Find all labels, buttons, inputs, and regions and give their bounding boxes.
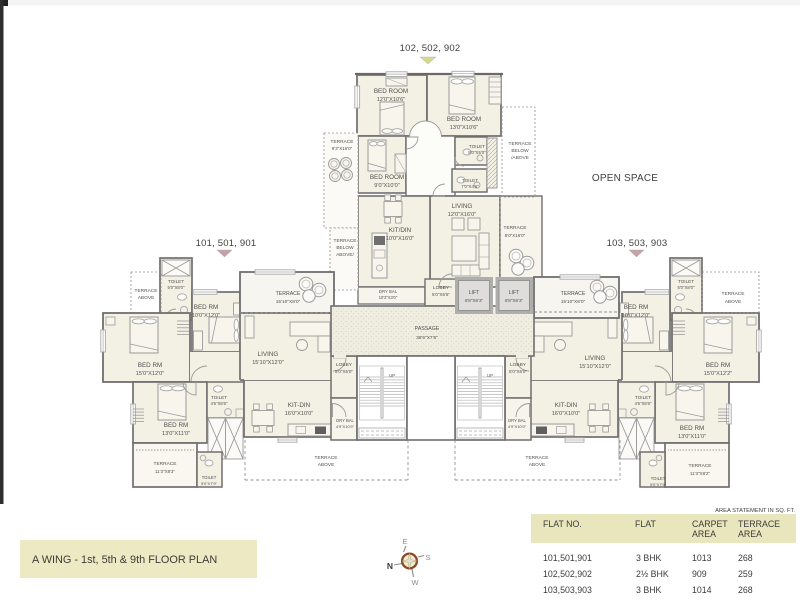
svg-text:3 BHK: 3 BHK <box>636 553 662 563</box>
svg-text:16'0"X10'0": 16'0"X10'0" <box>552 411 581 417</box>
svg-text:4'6"X8'6": 4'6"X8'6" <box>634 401 652 406</box>
svg-text:DRY BAL: DRY BAL <box>379 289 398 294</box>
svg-text:TOILET: TOILET <box>678 279 694 284</box>
svg-text:13'0"X11'0": 13'0"X11'0" <box>162 431 190 437</box>
svg-text:LIFT: LIFT <box>469 290 480 296</box>
svg-text:TERRACE: TERRACE <box>504 225 527 231</box>
svg-text:TERRACE: TERRACE <box>526 455 549 461</box>
svg-text:LIVING: LIVING <box>258 351 279 358</box>
svg-text:AREA: AREA <box>738 529 762 539</box>
svg-text:BED ROOM: BED ROOM <box>447 116 481 123</box>
svg-text:4'6"X8'6": 4'6"X8'6" <box>210 401 228 406</box>
svg-text:TERRACE: TERRACE <box>561 291 586 297</box>
svg-text:10'0"X16'0": 10'0"X16'0" <box>386 236 415 242</box>
svg-text:S: S <box>425 553 430 562</box>
svg-text:LOBBY: LOBBY <box>433 285 450 291</box>
svg-text:9'3"X16'0": 9'3"X16'0" <box>332 146 353 151</box>
svg-text:6'8"X6'3": 6'8"X6'3" <box>465 298 484 303</box>
svg-text:9'0"X10'0": 9'0"X10'0" <box>374 183 399 189</box>
svg-text:12'0"X10'6": 12'0"X10'6" <box>377 97 406 103</box>
svg-text:LOBBY: LOBBY <box>510 362 527 368</box>
svg-text:15'0"X12'0": 15'0"X12'0" <box>136 371 165 377</box>
svg-text:15'0"X12'2": 15'0"X12'2" <box>704 371 733 377</box>
svg-text:102, 502, 902: 102, 502, 902 <box>400 43 461 54</box>
svg-text:ABOVE: ABOVE <box>529 462 546 468</box>
svg-text:KIT/DIN: KIT/DIN <box>389 227 412 234</box>
svg-text:101, 501, 901: 101, 501, 901 <box>196 238 257 249</box>
svg-text:ABOVE/: ABOVE/ <box>336 252 355 258</box>
svg-text:TERRACE: TERRACE <box>738 519 780 529</box>
svg-text:BELOW: BELOW <box>336 245 354 251</box>
svg-text:UP: UP <box>487 373 493 378</box>
svg-text:ABOVE: ABOVE <box>138 295 155 301</box>
svg-text:FLAT NO.: FLAT NO. <box>543 519 582 529</box>
svg-text:ABOVE: ABOVE <box>725 299 742 305</box>
svg-text:TERRACE: TERRACE <box>689 463 712 469</box>
svg-text:5'0"X5'6": 5'0"X5'6" <box>432 292 450 297</box>
svg-text:5'0"X7'9": 5'0"X7'9" <box>201 481 218 486</box>
svg-text:15'10"X12'0": 15'10"X12'0" <box>252 360 284 366</box>
svg-text:7'0"X4'6": 7'0"X4'6" <box>461 184 479 189</box>
svg-text:TOILET: TOILET <box>651 476 666 481</box>
svg-text:10'0"X12'0": 10'0"X12'0" <box>192 313 221 319</box>
svg-text:CARPET: CARPET <box>692 519 728 529</box>
svg-text:BED RM: BED RM <box>706 362 731 369</box>
svg-text:6'8"X6'3": 6'8"X6'3" <box>505 298 524 303</box>
svg-text:BED ROOM: BED ROOM <box>374 88 408 95</box>
svg-text:268: 268 <box>738 585 753 595</box>
svg-text:8'0"X5'0": 8'0"X5'0" <box>468 150 486 155</box>
svg-text:10'3"X3'0": 10'3"X3'0" <box>379 295 398 300</box>
svg-text:BED RM: BED RM <box>194 304 219 311</box>
svg-text:DRY BAL: DRY BAL <box>508 418 526 423</box>
svg-text:LIFT: LIFT <box>509 290 520 296</box>
svg-text:/ABOVE: /ABOVE <box>511 155 529 161</box>
svg-text:E: E <box>402 537 407 546</box>
svg-text:15'10"X8'0": 15'10"X8'0" <box>276 299 301 305</box>
svg-text:TERRACE: TERRACE <box>334 238 357 244</box>
svg-text:KIT-DIN: KIT-DIN <box>288 402 311 409</box>
svg-text:UP: UP <box>389 373 395 378</box>
svg-text:TOILET: TOILET <box>469 144 485 149</box>
svg-text:13'0"X11'0": 13'0"X11'0" <box>678 434 706 440</box>
svg-text:ABOVE: ABOVE <box>318 462 335 468</box>
svg-text:4'9"X10'9": 4'9"X10'9" <box>508 424 527 429</box>
svg-text:A WING - 1st, 5th & 9th FLOOR: A WING - 1st, 5th & 9th FLOOR PLAN <box>32 554 217 566</box>
svg-text:OPEN SPACE: OPEN SPACE <box>592 173 658 184</box>
svg-text:103,503,903: 103,503,903 <box>543 585 592 595</box>
svg-text:3 BHK: 3 BHK <box>636 585 662 595</box>
svg-text:4'9"X10'9": 4'9"X10'9" <box>336 424 355 429</box>
svg-text:LIVING: LIVING <box>585 355 606 362</box>
svg-text:TERRACE: TERRACE <box>722 291 745 297</box>
svg-text:LOBBY: LOBBY <box>336 362 353 368</box>
svg-text:11'3"X8'2": 11'3"X8'2" <box>690 471 710 476</box>
svg-text:TERRACE: TERRACE <box>135 288 158 294</box>
svg-text:268: 268 <box>738 553 753 563</box>
svg-text:15'10"X12'0": 15'10"X12'0" <box>579 364 611 370</box>
svg-text:5'0"X8'0": 5'0"X8'0" <box>677 285 695 290</box>
svg-text:1014: 1014 <box>692 585 712 595</box>
svg-text:TOILET: TOILET <box>168 279 184 284</box>
svg-text:TOILET: TOILET <box>635 395 651 400</box>
svg-text:PASSAGE: PASSAGE <box>415 326 440 332</box>
svg-text:TERRACE: TERRACE <box>331 139 354 145</box>
svg-text:103, 503, 903: 103, 503, 903 <box>607 238 668 249</box>
svg-text:12'0"X16'0": 12'0"X16'0" <box>448 212 477 218</box>
svg-text:TERRACE: TERRACE <box>509 141 532 147</box>
svg-text:2½ BHK: 2½ BHK <box>636 569 669 579</box>
svg-text:8'0"X16'0": 8'0"X16'0" <box>505 233 526 238</box>
svg-text:FLAT: FLAT <box>635 519 656 529</box>
svg-text:AREA: AREA <box>692 529 716 539</box>
svg-text:TERRACE: TERRACE <box>276 291 301 297</box>
svg-text:TOILET: TOILET <box>462 178 478 183</box>
svg-text:TOILET: TOILET <box>211 395 227 400</box>
svg-text:5'0"X7'9": 5'0"X7'9" <box>650 482 667 487</box>
svg-text:TOILET: TOILET <box>202 475 217 480</box>
svg-text:BELOW: BELOW <box>511 148 529 154</box>
svg-text:1013: 1013 <box>692 553 712 563</box>
svg-text:909: 909 <box>692 569 707 579</box>
svg-text:101,501,901: 101,501,901 <box>543 553 592 563</box>
svg-text:16'0"X10'0": 16'0"X10'0" <box>285 411 314 417</box>
svg-text:38'6"X7'6": 38'6"X7'6" <box>416 335 438 341</box>
svg-text:BED RM: BED RM <box>164 422 189 429</box>
svg-text:15'10"X8'0": 15'10"X8'0" <box>561 299 586 305</box>
svg-text:5'0"X5'0": 5'0"X5'0" <box>509 369 527 374</box>
svg-text:TERRACE: TERRACE <box>154 461 177 467</box>
svg-text:AREA STATEMENT IN SQ. FT.: AREA STATEMENT IN SQ. FT. <box>715 508 795 514</box>
svg-text:LIVING: LIVING <box>452 203 473 210</box>
svg-text:13'0"X10'6": 13'0"X10'6" <box>450 125 479 131</box>
svg-text:DRY BAL: DRY BAL <box>336 418 354 423</box>
svg-text:BED ROOM: BED ROOM <box>370 174 404 181</box>
svg-text:11'3"X8'3": 11'3"X8'3" <box>155 469 175 474</box>
svg-text:BED RM: BED RM <box>680 425 705 432</box>
svg-text:259: 259 <box>738 569 753 579</box>
svg-text:BED RM: BED RM <box>624 304 649 311</box>
svg-text:BED RM: BED RM <box>138 362 163 369</box>
svg-text:W: W <box>411 578 419 587</box>
svg-text:5'0"X8'0": 5'0"X8'0" <box>167 285 185 290</box>
svg-text:102,502,902: 102,502,902 <box>543 569 592 579</box>
svg-text:5'0"X5'0": 5'0"X5'0" <box>335 369 353 374</box>
svg-text:KIT-DIN: KIT-DIN <box>555 402 578 409</box>
svg-text:10'0"X12'0": 10'0"X12'0" <box>622 313 651 319</box>
svg-text:N: N <box>387 561 393 571</box>
svg-text:TERRACE: TERRACE <box>315 455 338 461</box>
